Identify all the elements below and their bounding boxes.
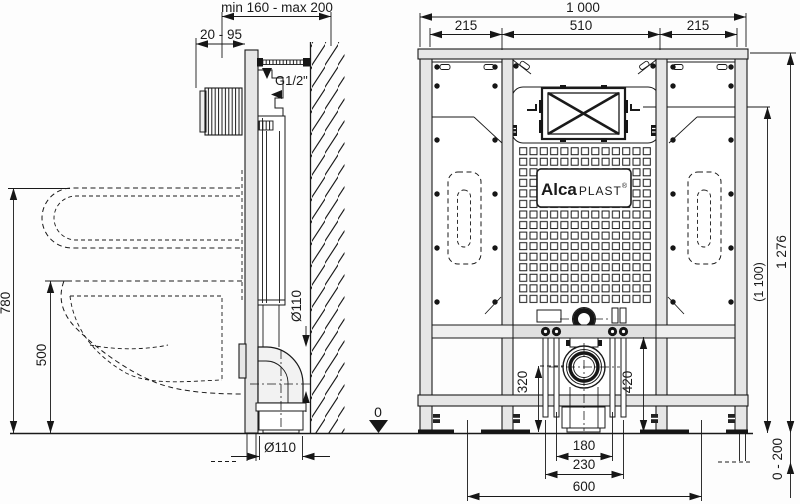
dim-1100-label: (1 100)	[752, 262, 766, 302]
dim-height-500: 500	[34, 281, 68, 433]
dim-500-label: 500	[34, 344, 49, 367]
tank-grid-panel: AlcaPLAST®	[519, 146, 653, 304]
cistern-side	[258, 70, 285, 347]
datum-zero-label: 0	[374, 404, 382, 420]
wall-anchor-rod	[257, 58, 310, 67]
dim-320-label: 320	[515, 371, 530, 394]
top-rail	[418, 49, 748, 59]
dim-total-height: 1 276	[750, 53, 796, 433]
dim-215-left-label: 215	[455, 18, 478, 33]
lower-bracket-side	[239, 344, 246, 378]
dim-dia-side-label: Ø110	[289, 290, 304, 322]
dim-width-chain: 215 510 215	[430, 18, 737, 50]
dim-block-range-label: 20 - 95	[200, 27, 242, 42]
technical-drawing-page: min 160 - max 200 20 - 95 G1/2" 780	[0, 0, 800, 504]
waste-elbow-side	[250, 347, 312, 433]
inner-column-left	[502, 58, 513, 430]
side-view: min 160 - max 200 20 - 95 G1/2" 780	[0, 0, 388, 462]
dim-depth-range-label: min 160 - max 200	[221, 0, 333, 15]
wall-section	[311, 42, 345, 433]
dim-215-right-label: 215	[687, 18, 710, 33]
dim-block-range: 20 - 95	[196, 27, 245, 88]
dim-1276-label: 1 276	[774, 235, 789, 269]
front-view: AlcaPLAST®	[418, 0, 796, 501]
dim-600-label: 600	[573, 479, 596, 494]
dim-leg-range: 0 - 200	[770, 421, 794, 498]
wc-frame-drawing: min 160 - max 200 20 - 95 G1/2" 780	[0, 0, 800, 504]
dim-0-200-label: 0 - 200	[770, 438, 785, 480]
brand-logo-plate: AlcaPLAST®	[537, 169, 631, 207]
right-side-panel	[667, 62, 735, 325]
outer-column-left	[420, 58, 432, 430]
wc-pan-outline	[42, 170, 242, 394]
dim-flush-height: (1 100)	[752, 107, 771, 433]
dim-510-label: 510	[570, 18, 593, 33]
datum-zero-marker: 0	[369, 404, 388, 433]
inlet-thread-label: G1/2"	[275, 73, 308, 88]
dim-height-780: 780	[0, 188, 70, 433]
inner-column-right	[656, 58, 667, 430]
dim-1000-label: 1 000	[566, 0, 600, 15]
dim-780-label: 780	[0, 292, 13, 315]
dim-420-label: 420	[620, 371, 635, 394]
frame-profile-side	[245, 50, 258, 433]
dim-230-label: 230	[573, 457, 596, 472]
outer-column-right	[735, 58, 747, 430]
dim-pipe-dia-bottom: Ø110	[231, 436, 330, 460]
lower-rail	[418, 395, 748, 406]
left-side-panel	[432, 62, 502, 325]
threaded-block	[200, 88, 242, 135]
dim-180-label: 180	[573, 438, 596, 453]
dim-dia-bottom-label: Ø110	[264, 440, 296, 455]
